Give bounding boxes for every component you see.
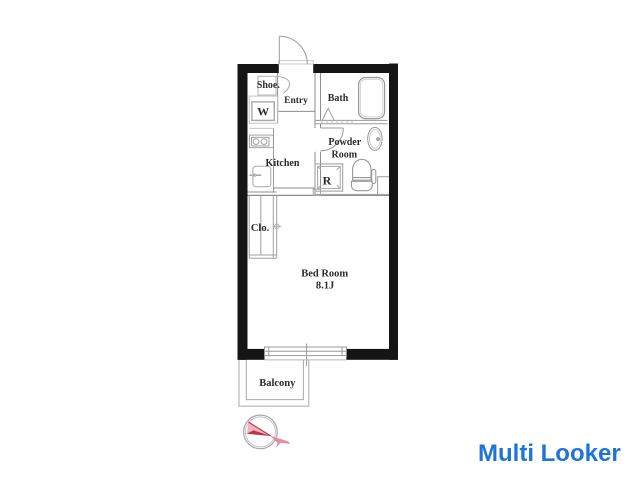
svg-text:Room: Room bbox=[332, 150, 358, 161]
svg-text:Balcony: Balcony bbox=[259, 378, 296, 389]
svg-text:Bath: Bath bbox=[328, 93, 349, 104]
svg-text:R: R bbox=[323, 173, 332, 187]
svg-text:Multi Looker: Multi Looker bbox=[478, 440, 621, 467]
svg-text:W: W bbox=[257, 105, 269, 119]
svg-text:Kitchen: Kitchen bbox=[266, 158, 300, 169]
svg-text:Powder: Powder bbox=[328, 137, 361, 148]
svg-text:Shoe.: Shoe. bbox=[257, 80, 281, 91]
svg-text:Clo.: Clo. bbox=[251, 223, 270, 234]
svg-text:Bed Room: Bed Room bbox=[301, 269, 348, 280]
svg-text:Entry: Entry bbox=[284, 96, 308, 106]
svg-text:8.1J: 8.1J bbox=[316, 281, 334, 292]
